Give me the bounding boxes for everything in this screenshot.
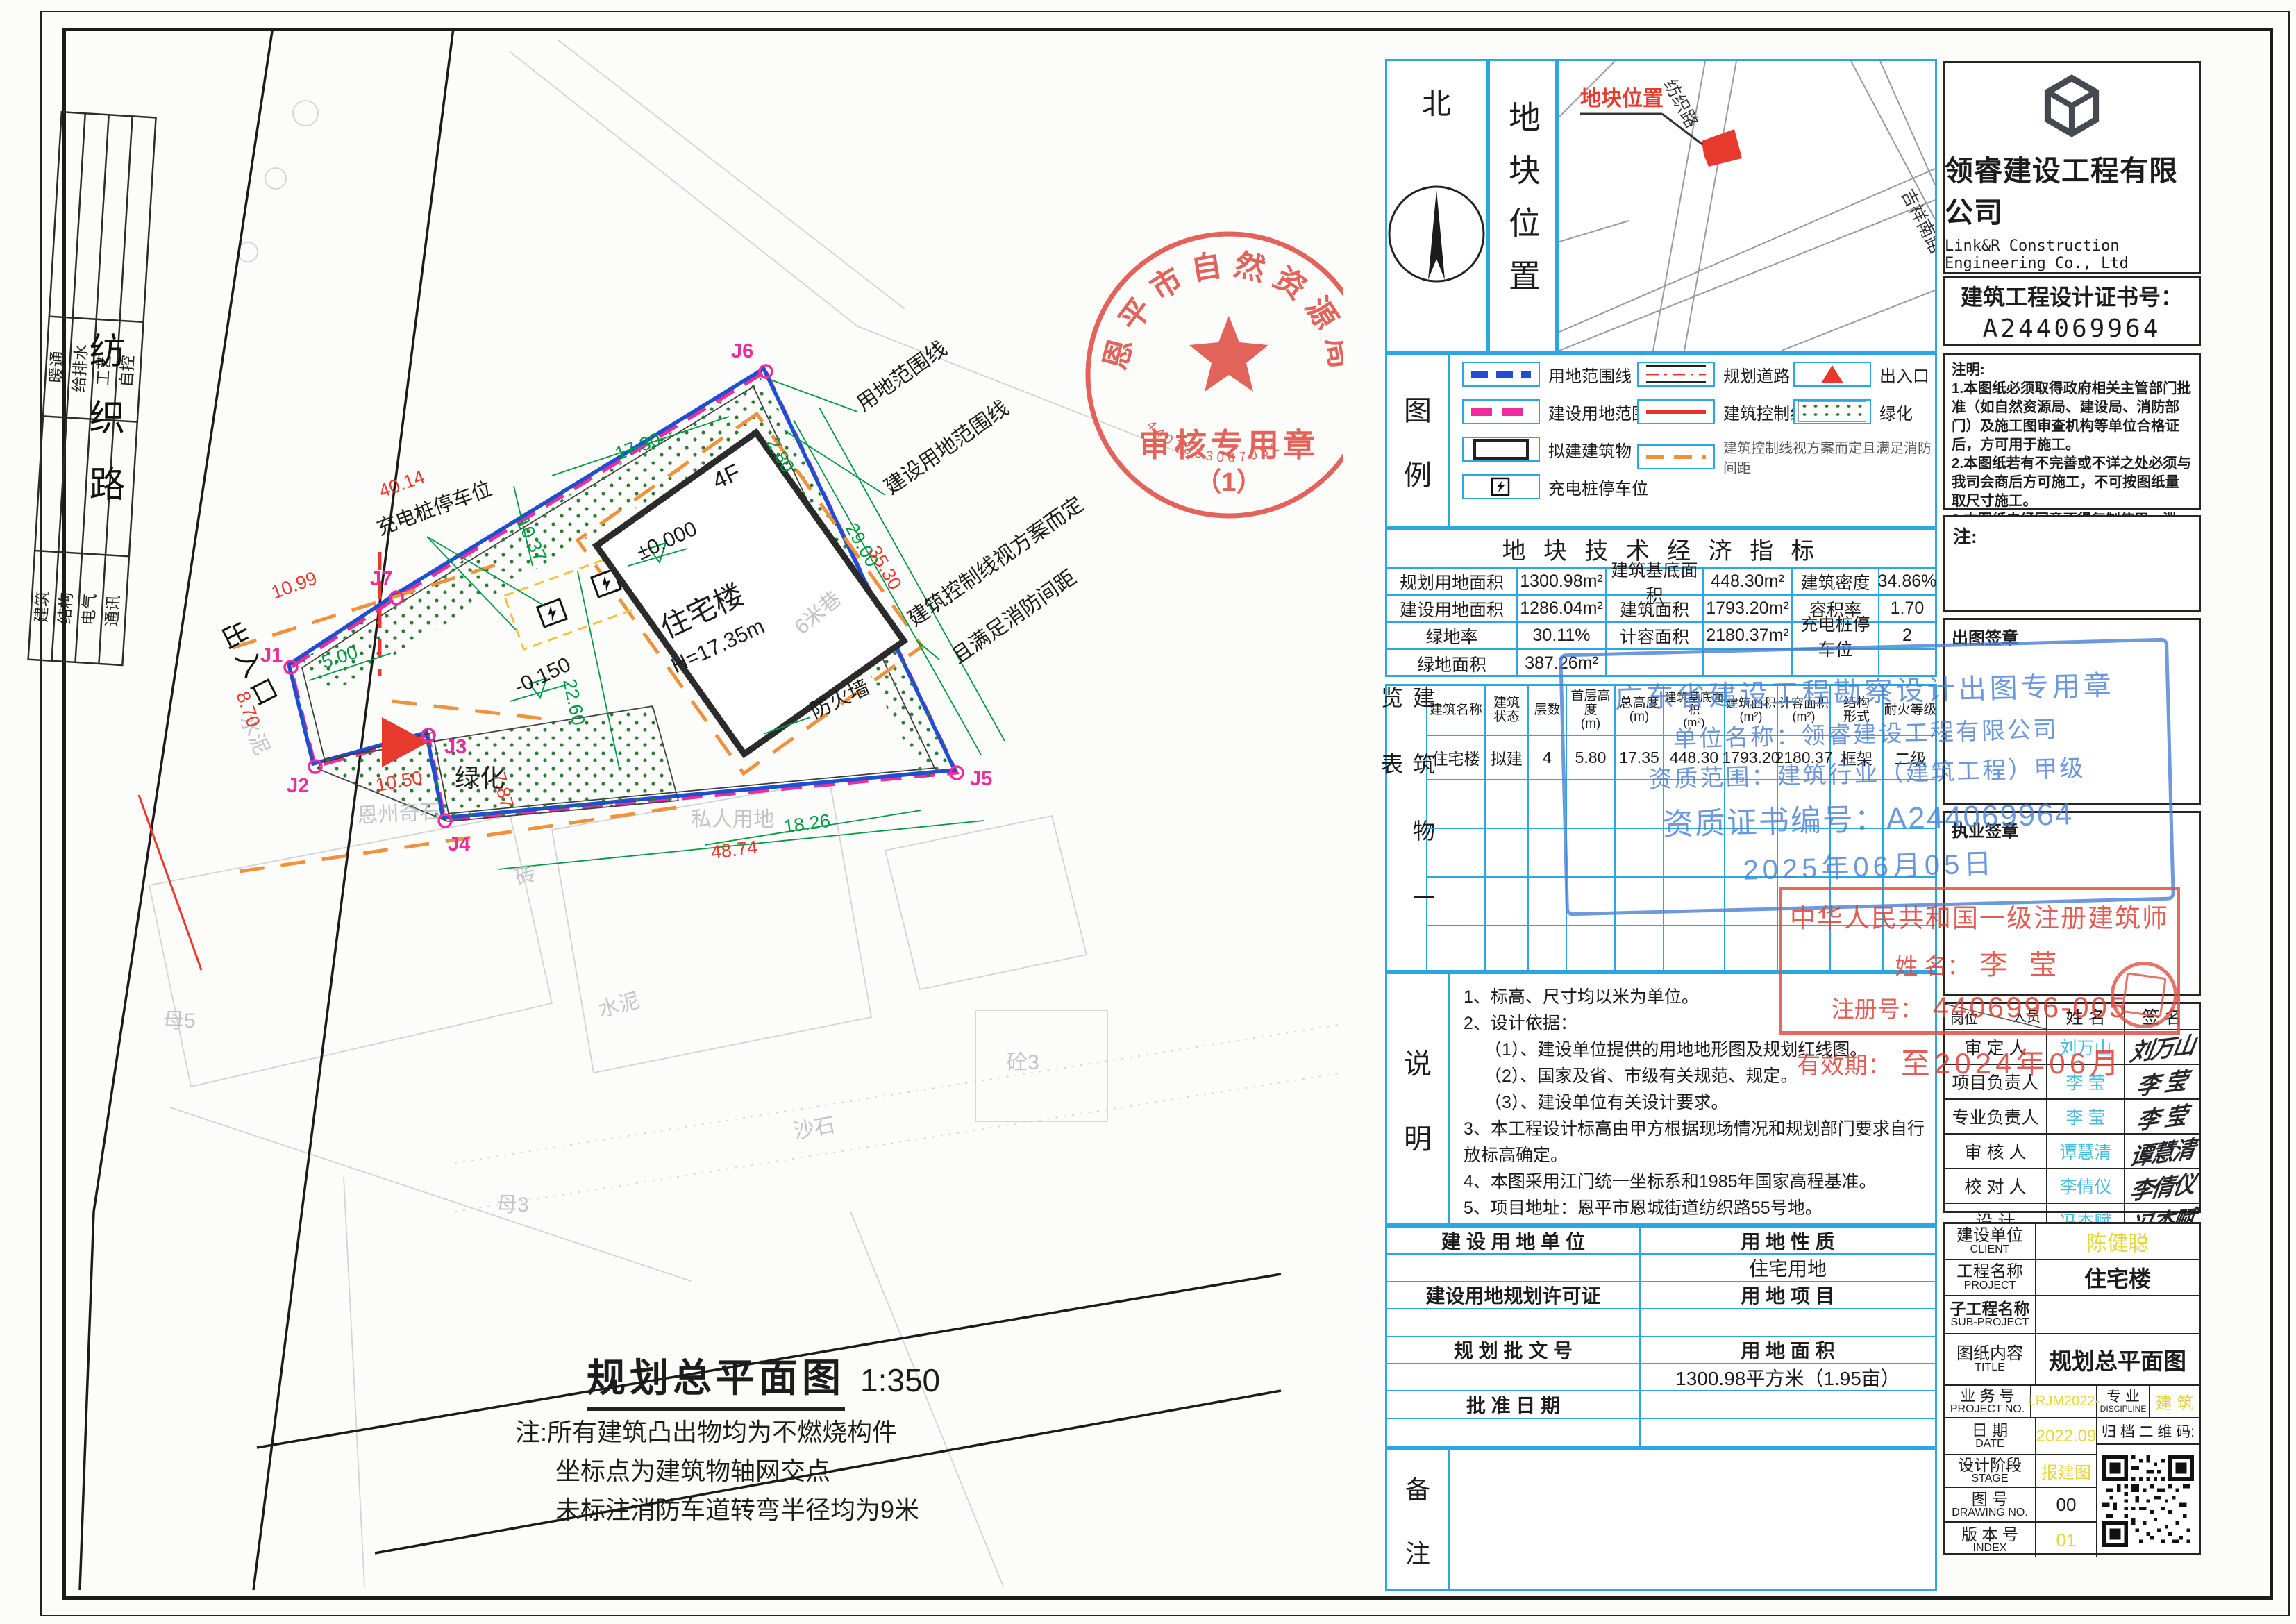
landuse-value: 住宅用地 — [1641, 1255, 1935, 1282]
signoff-header-person: 人员 — [2013, 1005, 2041, 1026]
subproject-label-en: SUB-PROJECT — [1951, 1317, 2029, 1329]
caption-note-3: 未标注消防车道转弯半径均为9米 — [515, 1491, 919, 1530]
legend-item-entrance: 出入口 — [1793, 362, 1929, 387]
bt-header: 建筑 — [1493, 696, 1520, 710]
location-map: 地块位置 纺织路 吉祥南路 — [1559, 61, 1935, 351]
remark-box: 备 注 — [1385, 1448, 1937, 1591]
remarks-title: 注明: — [1952, 360, 2192, 379]
planned-road-redline — [139, 795, 201, 970]
signoff-role: 审 核 人 — [1945, 1135, 2047, 1169]
date-label: 日 期 — [1972, 1422, 2008, 1439]
label-enzhou: 恩州奇石 — [357, 801, 442, 828]
signoff-header-role: 岗位 — [1950, 1007, 1978, 1028]
license-box: 执业签章 — [1943, 811, 2201, 996]
bt-header: 计容面积 — [1779, 697, 1829, 710]
ind-value: 387.26m² — [1518, 650, 1607, 677]
ind-label: 绿地率 — [1387, 623, 1518, 650]
signature-mark: 李 莹 — [2135, 1062, 2190, 1102]
legend-box: 图 例 用地范围线 建设用地范围线 拟建建筑物 充电桩停车位 规划道路 — [1385, 353, 1937, 528]
signoff-signature: 刘万山 — [2125, 1030, 2199, 1065]
client-value: 陈健聪 — [2036, 1224, 2199, 1260]
note-line: （2）、国家及省、市级有关规范、规定。 — [1464, 1063, 1929, 1089]
signoff-role: 审 定 人 — [1945, 1030, 2047, 1065]
signoff-header-diagonal: 人员 岗位 — [1945, 1004, 2047, 1030]
label-plot5: 母5 — [163, 1010, 196, 1032]
remark-item: 1.本图纸必须取得政府相关主管部门批准（如自然资源局、建设局、消防部门）及施工图… — [1952, 379, 2192, 454]
caption-title: 规划总平面图 — [587, 1347, 845, 1411]
legend-item-road: 规划道路 — [1637, 362, 1790, 387]
bt-header: 总高度 — [1619, 696, 1659, 710]
label-plot3: 母3 — [496, 1194, 529, 1216]
signoff-signature: 李 莹 — [2125, 1065, 2199, 1100]
bt-cell: 2180.37 — [1778, 736, 1831, 780]
discipline-value: 建 筑 — [2150, 1386, 2199, 1418]
company-name: 领睿建设工程有限公司 — [1945, 147, 2199, 231]
landuse-box: 建 设 用 地 单 位 用 地 性 质 住宅用地 建设用地规划许可证 用 地 项… — [1385, 1225, 1937, 1448]
bt-header-sub: 形式 — [1843, 710, 1870, 724]
legend-label: 绿化 — [1879, 400, 1913, 424]
bt-cell: 5.80 — [1567, 736, 1616, 780]
qr-label: 归 档 二 维 码: — [2097, 1418, 2199, 1445]
title-value: 规划总平面图 — [2036, 1334, 2199, 1386]
landuse-label: 规 划 批 文 号 — [1387, 1337, 1641, 1364]
ind-value: 448.30m² — [1704, 569, 1793, 596]
location-title: 地块位置 — [1500, 101, 1545, 312]
legend-item-greenery: 绿化 — [1793, 399, 1913, 424]
date-label-en: DATE — [1975, 1439, 2004, 1450]
landuse-label: 建 设 用 地 单 位 — [1387, 1228, 1641, 1255]
point-j2: J2 — [287, 775, 309, 797]
north-label: 北 — [1387, 81, 1486, 123]
ind-label: 建筑基底面积 — [1607, 569, 1704, 596]
ind-label: 建设用地面积 — [1387, 596, 1518, 623]
license-label: 执业签章 — [1952, 817, 2192, 842]
project-label-en: PROJECT — [1964, 1280, 2016, 1292]
client-label: 建设单位 — [1956, 1227, 2023, 1244]
client-label-en: CLIENT — [1970, 1244, 2010, 1256]
note-line: 5、项目地址：恩平市恩城街道纺织路55号地。 — [1464, 1195, 1929, 1221]
map-marker-label: 地块位置 — [1580, 87, 1664, 110]
legend-label: 出入口 — [1879, 362, 1929, 387]
stage-label-en: STAGE — [1971, 1473, 2008, 1485]
dim-22-60: 22.60 — [559, 677, 589, 727]
note-line: 2、设计依据： — [1464, 1010, 1929, 1037]
index-label: 版 本 号 — [1961, 1526, 2018, 1543]
signoff-name: 李 莹 — [2047, 1065, 2125, 1100]
legend-title-2: 例 — [1404, 453, 1432, 493]
cert-number: A244069964 — [1983, 315, 2161, 343]
caption-note-1: 注:所有建筑凸出物均为不燃烧构件 — [515, 1413, 919, 1452]
signoff-role: 项目负责人 — [1945, 1065, 2047, 1100]
bt-header: 建筑面积 — [1726, 697, 1776, 710]
control-line-icon — [1637, 399, 1715, 424]
stage-value: 报建图 — [2036, 1455, 2097, 1488]
ind-value: 30.11% — [1518, 623, 1607, 650]
bt-header: 首层高度 — [1567, 689, 1614, 717]
landuse-label: 批 准 日 期 — [1387, 1391, 1641, 1418]
notes-side-label-2: 明 — [1404, 1116, 1432, 1157]
company-box: 领睿建设工程有限公司 Link&R Construction Engineeri… — [1943, 61, 2201, 274]
map-road1-label: 纺织路 — [1660, 76, 1702, 131]
bt-cell: 框架 — [1831, 736, 1884, 780]
project-label: 工程名称 — [1956, 1263, 2023, 1280]
signoff-role: 校 对 人 — [1945, 1169, 2047, 1204]
bt-header-sub: (m) — [1581, 717, 1600, 731]
discipline-label: 专 业 — [2106, 1389, 2140, 1405]
map-parcel-marker — [1702, 129, 1742, 167]
remarks-box: 注明: 1.本图纸必须取得政府相关主管部门批准（如自然资源局、建设局、消防部门）… — [1943, 353, 2201, 510]
north-box: 北 — [1385, 59, 1488, 353]
legend-label: 规划道路 — [1723, 362, 1790, 387]
signbar-arch: 建筑 — [32, 590, 52, 623]
drawing-sheet: 暖通 给排水 工艺 自控 建筑 结构 电气 通讯 — [0, 0, 2296, 1624]
north-arrow-icon — [1387, 123, 1486, 345]
signoff-table: 人员 岗位 姓 名 签 名 审 定 人 刘万山 刘万山 项目负责人 李 莹 李 … — [1943, 1002, 2201, 1213]
legend-item-constr-boundary: 建设用地范围线 — [1462, 399, 1665, 424]
use-boundary-icon — [1462, 362, 1540, 387]
legend-item-use-boundary: 用地范围线 — [1462, 362, 1632, 387]
plan-caption: 规划总平面图 1:350 — [587, 1347, 940, 1411]
approval-stamp: 恩平市自然资源局 审核专用章 （1） 4407853007031 — [1088, 234, 1343, 516]
landuse-label: 用 地 项 目 — [1641, 1282, 1935, 1309]
ind-value: 1.70 — [1879, 596, 1935, 623]
signoff-role: 专业负责人 — [1945, 1100, 2047, 1135]
label-concrete: 砼3 — [1007, 1051, 1039, 1074]
landuse-value: 1300.98平方米（1.95亩） — [1641, 1364, 1935, 1391]
constr-boundary-label: 建设用地范围线 — [880, 396, 1013, 499]
caption-scale: 1:350 — [860, 1362, 940, 1399]
greenery-icon — [1793, 399, 1871, 424]
drawingno-value: 00 — [2036, 1488, 2097, 1523]
point-j7: J7 — [370, 568, 392, 590]
bt-cell: 17.35 — [1616, 736, 1664, 780]
ind-label — [1793, 650, 1879, 677]
note-line: 1、标高、尺寸均以米为单位。 — [1464, 984, 1929, 1010]
note-line: 3、本工程设计标高由甲方根据现场情况和规划部门要求自行放标高确定。 — [1464, 1116, 1929, 1169]
bt-header-sub: 状态 — [1493, 710, 1520, 724]
note-empty-box: 注: — [1943, 515, 2201, 612]
drawingno-label-en: DRAWING NO. — [1952, 1507, 2028, 1519]
bt-header-sub: (m²) — [1740, 710, 1763, 723]
ind-label: 规划用地面积 — [1387, 569, 1518, 596]
bt-header-sub: (m²) — [1793, 710, 1816, 723]
cert-box: 建筑工程设计证书号： A244069964 — [1943, 276, 2201, 346]
company-name-en: Link&R Construction Engineering Co., Ltd — [1945, 237, 2199, 272]
planned-road-icon — [1637, 362, 1715, 387]
entrance-icon — [1793, 362, 1871, 387]
archive-qr-code — [2102, 1455, 2194, 1547]
signoff-name: 谭慧清 — [2047, 1135, 2125, 1169]
legend-title-1: 图 — [1404, 388, 1432, 428]
projectno-label-en: PROJECT NO. — [1950, 1404, 2025, 1416]
signoff-header-name: 姓 名 — [2047, 1004, 2125, 1030]
bt-header: 结构 — [1843, 696, 1870, 710]
label-brick: 砖 — [512, 862, 539, 890]
bt-cell: 448.30 — [1664, 736, 1725, 780]
stamp-line3: （1） — [1195, 468, 1262, 497]
location-title-box: 地块位置 — [1488, 59, 1557, 353]
ind-label: 充电桩停车位 — [1793, 623, 1879, 650]
dim-35-30: 35.30 — [864, 542, 906, 594]
plan-caption-notes: 注:所有建筑凸出物均为不燃烧构件 坐标点为建筑物轴网交点 未标注消防车道转弯半径… — [515, 1413, 919, 1530]
point-j6: J6 — [731, 340, 753, 362]
signbar-hvac: 暖通 — [47, 351, 67, 384]
note-line: （1）、建设单位提供的用地地形图及规划红线图。 — [1464, 1037, 1929, 1063]
landuse-label: 用 地 性 质 — [1641, 1228, 1935, 1255]
cert-label: 建筑工程设计证书号： — [1961, 280, 2183, 312]
legend-item-building: 拟建建筑物 — [1462, 437, 1632, 462]
signoff-name: 李 莹 — [2047, 1100, 2125, 1135]
stage-label: 设计阶段 — [1958, 1457, 2022, 1473]
landuse-label: 用 地 面 积 — [1641, 1337, 1935, 1364]
proposed-building-icon — [1462, 437, 1540, 462]
chop-box: 出图签章 — [1943, 618, 2201, 805]
ind-label: 建筑面积 — [1607, 596, 1704, 623]
project-value: 住宅楼 — [2036, 1260, 2199, 1296]
note-empty-label: 注: — [1953, 523, 2190, 549]
point-j3: J3 — [444, 736, 467, 758]
bt-header: 建筑基底面积 — [1664, 692, 1724, 717]
label-cement: 水泥 — [596, 989, 642, 1021]
signoff-signature: 谭慧清 — [2125, 1135, 2199, 1169]
ind-value: 34.86% — [1879, 569, 1935, 596]
discipline-label-en: DISCIPLINE — [2100, 1405, 2147, 1414]
chop-label: 出图签章 — [1952, 624, 2192, 648]
building-table-box: 建 筑 物 一 览 表 建筑名称 建筑状态 层数 首层高度(m) 总高度(m) … — [1385, 684, 1937, 972]
control-line-orange-icon — [1637, 444, 1715, 469]
dim-48-74: 48.74 — [710, 837, 759, 863]
point-j4: J4 — [448, 833, 470, 855]
ind-value: 1286.04m² — [1518, 596, 1607, 623]
ind-label: 绿地面积 — [1387, 650, 1518, 677]
map-road2-label: 吉祥南路 — [1897, 186, 1935, 257]
dim-18-26: 18.26 — [782, 810, 832, 837]
charging-parking-icon — [1462, 474, 1540, 499]
dim-40-14: 40.14 — [376, 466, 428, 501]
bt-header-sub: (m) — [1629, 710, 1649, 724]
ind-value: 2180.37m² — [1704, 623, 1793, 650]
ind-label — [1607, 650, 1704, 677]
landuse-label: 建设用地规划许可证 — [1387, 1282, 1641, 1309]
signature-mark: 李 莹 — [2135, 1096, 2190, 1137]
dim-10-99: 10.99 — [269, 567, 320, 603]
date-value: 2022.09 — [2036, 1418, 2097, 1455]
note-line: 4、本图采用江门统一坐标系和1985年国家高程基准。 — [1464, 1169, 1929, 1195]
projectno-value: LRJM2022- — [2031, 1386, 2097, 1418]
bt-header: 建筑名称 — [1430, 703, 1482, 717]
constr-boundary-icon — [1462, 399, 1540, 424]
signoff-signature: 李倩仪 — [2125, 1169, 2199, 1204]
signoff-name: 刘万山 — [2047, 1030, 2125, 1065]
use-boundary-label: 用地范围线 — [853, 337, 951, 416]
remark-item: 2.本图纸若有不完善或不详之处必须与我司会商后方可施工，不可按图纸量取尺寸施工。 — [1952, 454, 2192, 510]
caption-note-2: 坐标点为建筑物轴网交点 — [515, 1452, 919, 1491]
title-label-en: TITLE — [1975, 1362, 2005, 1374]
bt-header: 耐火等级 — [1884, 703, 1936, 717]
location-map-box: 地块位置 纺织路 吉祥南路 — [1557, 59, 1937, 353]
legend-label: 充电桩停车位 — [1548, 475, 1648, 499]
legend-label: 用地范围线 — [1548, 362, 1632, 387]
control-line-label-1: 建筑控制线视方案而定 — [904, 493, 1088, 631]
index-value: 01 — [2036, 1523, 2097, 1557]
notes-side-label-1: 说 — [1404, 1041, 1432, 1082]
notes-box: 说 明 1、标高、尺寸均以米为单位。 2、设计依据： （1）、建设单位提供的用地… — [1385, 972, 1937, 1225]
drawingno-label: 图 号 — [1972, 1491, 2008, 1507]
stamp-star-icon — [1189, 316, 1268, 392]
label-gravel: 沙石 — [791, 1114, 837, 1144]
bt-cell: 4 — [1529, 736, 1567, 780]
indicators-box: 地 块 技 术 经 济 指 标 规划用地面积 1300.98m² 建筑基底面积 … — [1385, 528, 1937, 677]
legend-label: 建筑控制线视方案而定且满足消防间距 — [1723, 437, 1932, 477]
ind-value: 2 — [1879, 623, 1935, 650]
bt-cell: 拟建 — [1486, 736, 1529, 780]
ind-label: 计容面积 — [1607, 623, 1704, 650]
ind-label: 建筑密度 — [1793, 569, 1879, 596]
bt-header-sub: (m²) — [1683, 717, 1704, 729]
note-line: （3）、建设单位有关设计要求。 — [1464, 1089, 1929, 1116]
remark-side-label-2: 注 — [1405, 1534, 1430, 1570]
bt-header: 层数 — [1534, 703, 1560, 717]
company-logo — [2037, 74, 2106, 137]
title-label: 图纸内容 — [1956, 1345, 2023, 1362]
point-j5: J5 — [970, 768, 992, 790]
info-table: 建设单位CLIENT 陈健聪 工程名称PROJECT 住宅楼 子工程名称SUB-… — [1943, 1222, 2201, 1555]
legend-item-charging: 充电桩停车位 — [1462, 474, 1648, 499]
bt-cell: 二级 — [1884, 736, 1937, 780]
ind-value: 1300.98m² — [1518, 569, 1607, 596]
projectno-label: 业 务 号 — [1960, 1388, 2014, 1404]
label-private-land: 私人用地 — [691, 808, 774, 831]
legend-item-control-orange: 建筑控制线视方案而定且满足消防间距 — [1637, 437, 1932, 477]
ind-value — [1704, 650, 1793, 677]
legend-label: 拟建建筑物 — [1548, 437, 1632, 462]
signoff-name: 李倩仪 — [2047, 1169, 2125, 1204]
ind-value — [1879, 650, 1935, 677]
index-label-en: INDEX — [1973, 1543, 2007, 1555]
subproject-label: 子工程名称 — [1950, 1300, 2030, 1317]
remark-side-label-1: 备 — [1405, 1470, 1430, 1506]
subproject-value — [2036, 1296, 2199, 1334]
ind-value: 1793.20m² — [1704, 596, 1793, 623]
bt-cell: 住宅楼 — [1427, 736, 1486, 780]
signoff-signature: 李 莹 — [2125, 1100, 2199, 1135]
road-name-fangzhi: 纺织路 — [78, 332, 130, 532]
bt-cell: 1793.20 — [1725, 736, 1778, 780]
legend-item-control: 建筑控制线 — [1637, 399, 1807, 424]
